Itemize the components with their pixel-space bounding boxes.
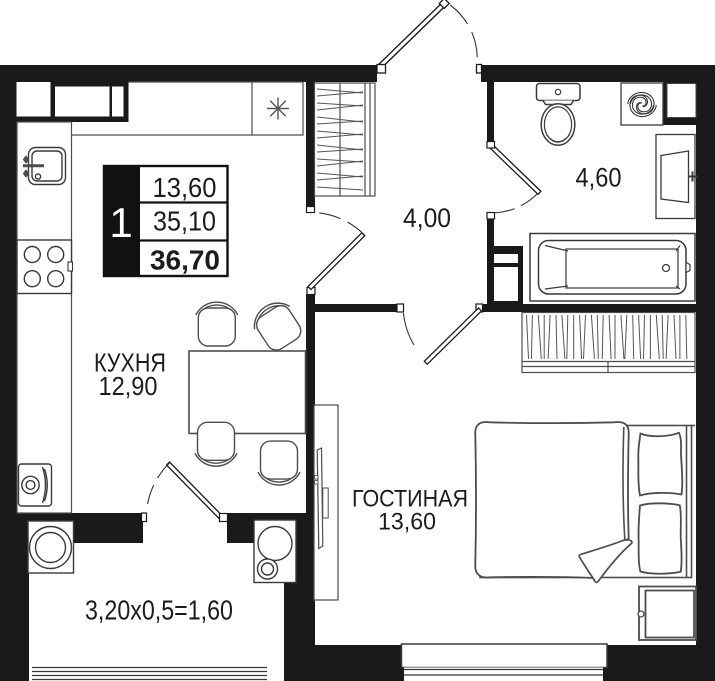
svg-text:36,70: 36,70 [150, 244, 220, 275]
svg-text:3,20x0,5=1,60: 3,20x0,5=1,60 [85, 595, 233, 626]
svg-text:13,60: 13,60 [153, 172, 217, 203]
svg-text:13,60: 13,60 [378, 509, 436, 536]
svg-text:4,00: 4,00 [403, 203, 451, 233]
svg-text:1: 1 [109, 199, 132, 246]
svg-text:12,90: 12,90 [99, 373, 158, 401]
svg-text:4,60: 4,60 [576, 163, 622, 193]
svg-text:35,10: 35,10 [153, 206, 216, 237]
